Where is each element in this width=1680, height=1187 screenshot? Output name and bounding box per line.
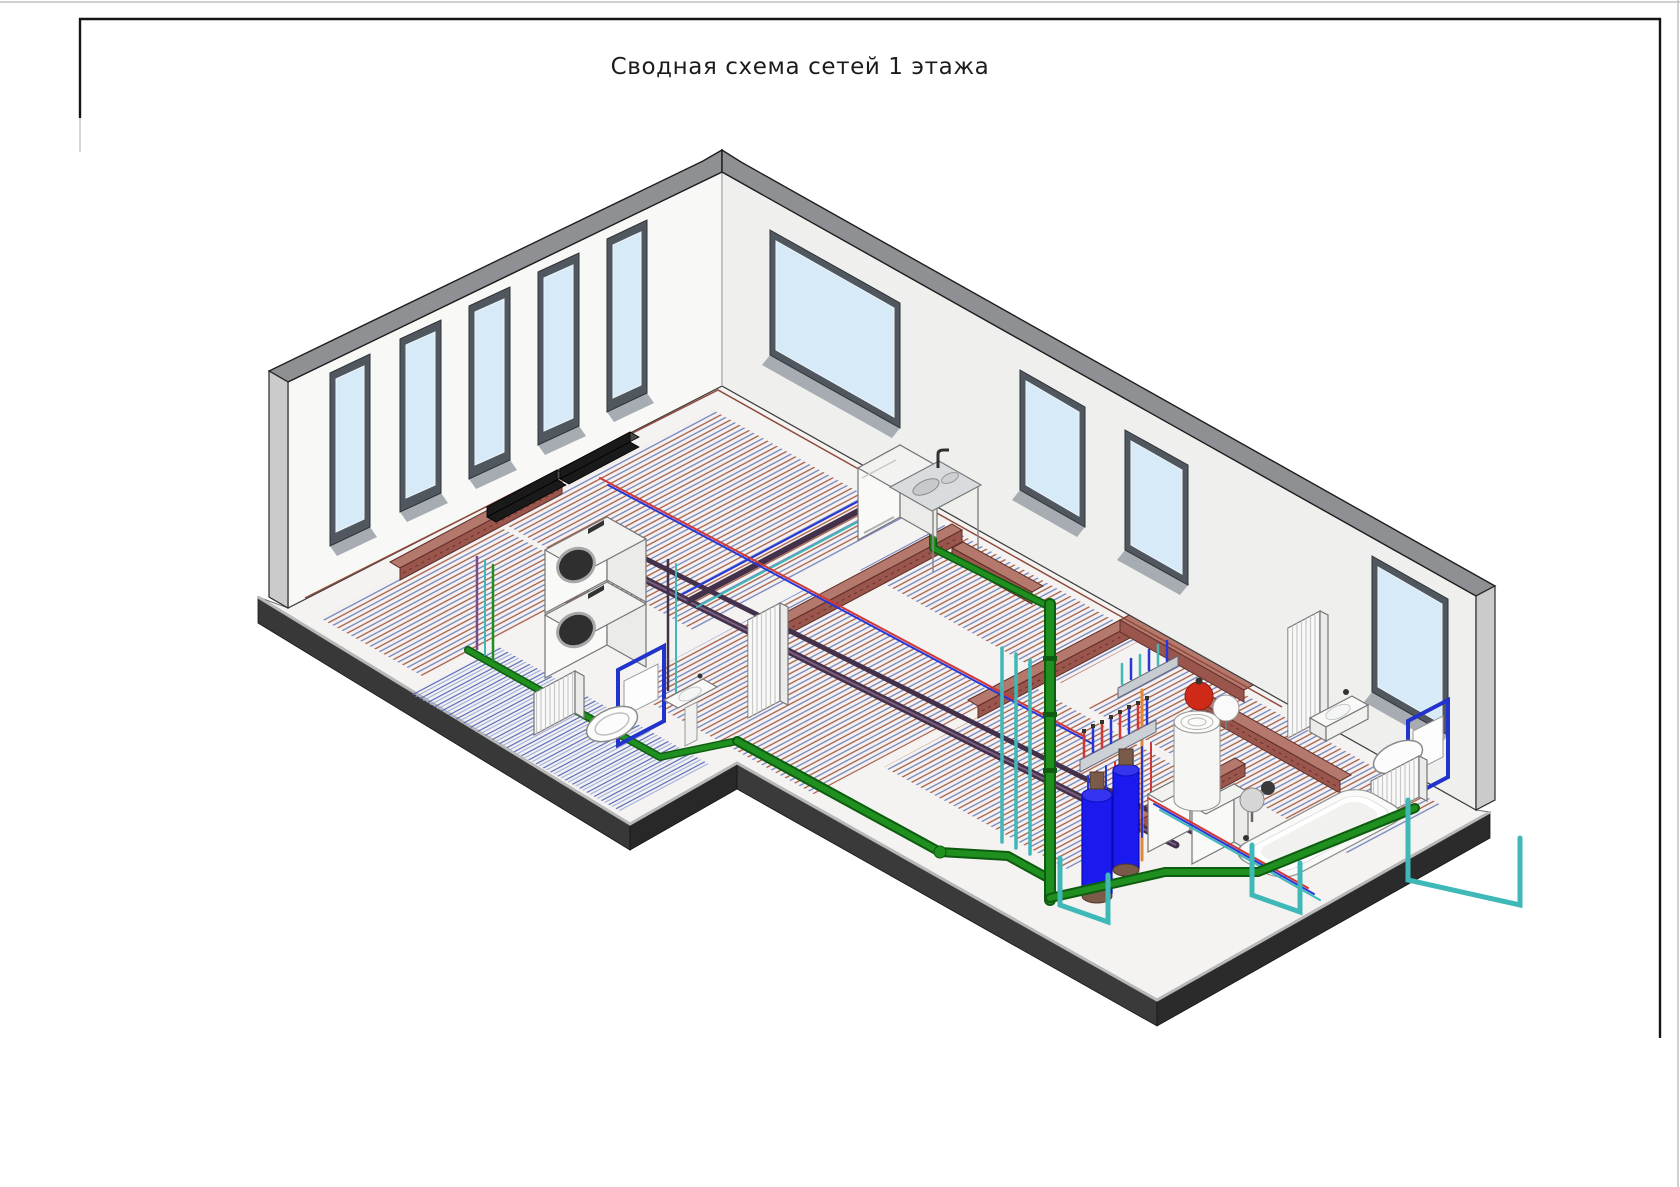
water-filter-tank-2 — [1113, 749, 1139, 876]
window — [330, 354, 377, 556]
tub-faucet — [1243, 835, 1249, 841]
window — [400, 320, 448, 522]
left-wall-end-cap — [269, 371, 288, 608]
window — [469, 287, 517, 489]
riser-collar — [1043, 712, 1057, 717]
drawing-canvas: Сводная схема сетей 1 этажа — [0, 0, 1680, 1187]
circulation-pump — [1261, 781, 1275, 795]
water-heater-cylinder — [1174, 711, 1220, 811]
right-wall-end-cap — [1476, 586, 1495, 810]
faucet — [698, 674, 703, 679]
faucet — [1343, 689, 1349, 695]
window — [538, 253, 586, 455]
riser-collar — [1043, 656, 1057, 661]
basin-pedestal — [685, 702, 697, 746]
sewage-elbow — [934, 846, 946, 858]
column-radiator-1 — [748, 603, 788, 718]
drawing-sheet: Сводная схема сетей 1 этажа — [0, 0, 1680, 1187]
drawing-title: Сводная схема сетей 1 этажа — [611, 54, 990, 80]
window — [607, 220, 654, 422]
riser-collar — [1043, 768, 1057, 773]
